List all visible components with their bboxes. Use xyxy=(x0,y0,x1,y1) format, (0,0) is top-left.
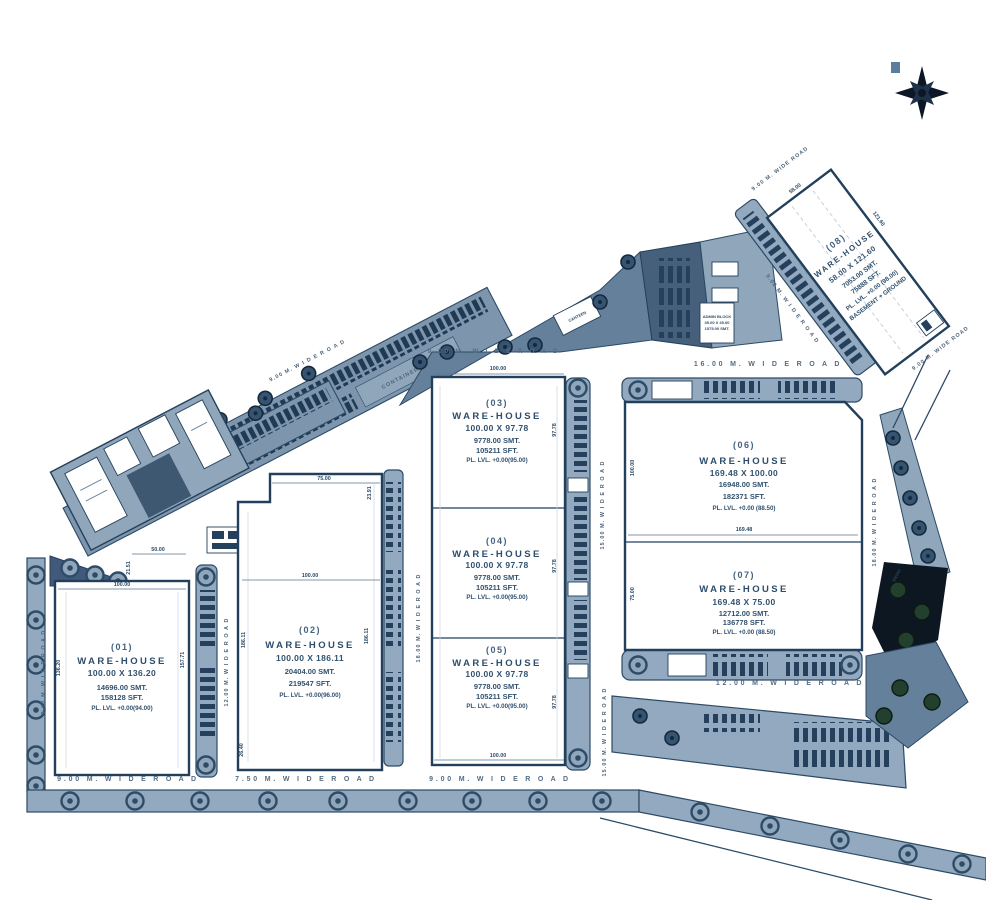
wh02-dim-left: 186.11 xyxy=(241,632,247,648)
wh05-sft: 105211 SFT. xyxy=(476,692,518,701)
corporate-block xyxy=(50,390,249,550)
wh06-dim-left: 100.00 xyxy=(630,460,636,477)
wh07-num: (07) xyxy=(733,570,755,580)
road-label-9m-left: 9.00 M. W I D E R O A D xyxy=(41,630,47,715)
wh06-smt: 16948.00 SMT. xyxy=(719,480,769,489)
warehouse-03-05-block: 100.00 100.00 (03) WARE-HOUSE 100.00 X 9… xyxy=(432,366,565,765)
road-label-18m-mid: 18.00 M. W I D E R O A D xyxy=(416,574,422,663)
wh07-level: PL. LVL. +0.00 (88.50) xyxy=(713,629,776,636)
road-label-12m-bottom: 12.00 M. W I D E R O A D xyxy=(716,680,864,687)
wh05-dim-bottom: 100.00 xyxy=(490,753,507,759)
wh07-dim-left: 75.00 xyxy=(630,587,636,601)
wh04-sft: 105211 SFT. xyxy=(476,583,518,592)
wh06-num: (06) xyxy=(733,440,755,450)
strip-right-of-02 xyxy=(384,470,403,766)
wh02-dim-right-top: 23.91 xyxy=(367,486,373,500)
wh01-dim-right: 157.71 xyxy=(180,652,186,669)
wh02-size: 100.00 X 186.11 xyxy=(276,653,344,663)
wh01-dim-top: 100.00 xyxy=(114,582,131,588)
wh03-sft: 105211 SFT. xyxy=(476,446,518,455)
wh06-level: PL. LVL. +0.00 (88.50) xyxy=(713,505,776,512)
bottom-right-boundary-strip xyxy=(639,790,986,880)
road-label-16m-top: 16.00 M. W I D E R O A D xyxy=(694,361,842,368)
wh02-num: (02) xyxy=(299,625,321,635)
wh02-title: WARE-HOUSE xyxy=(265,640,354,651)
wh01-smt: 14696.00 SMT. xyxy=(97,683,147,692)
wh05-title: WARE-HOUSE xyxy=(452,658,541,669)
wh05-dim-right: 97.78 xyxy=(552,695,558,709)
wh07-sft: 136778 SFT. xyxy=(723,618,766,627)
admin-block: ADMIN BLOCK 35.00 X 45.00 1575.00 SMT. xyxy=(700,303,734,343)
wh01-dim-notch-w: 50.00 xyxy=(151,547,165,553)
wh05-num: (05) xyxy=(486,645,508,655)
warehouse-06-07-block: (06) WARE-HOUSE 169.48 X 100.00 16948.00… xyxy=(625,402,862,650)
wh02-dim-right: 186.11 xyxy=(364,628,370,644)
compass-icon xyxy=(895,66,949,120)
wh02-level: PL. LVL. +0.00(96.00) xyxy=(279,692,340,699)
wh03-size: 100.00 X 97.78 xyxy=(465,423,528,433)
site-plan-drawing: CONTAINER YARD 9.00 M. W I D E R O A D xyxy=(0,0,986,900)
strip-right-of-03-05 xyxy=(566,378,590,770)
wh03-dim-top: 100.00 xyxy=(490,366,507,372)
wh07-smt: 12712.00 SMT. xyxy=(719,609,769,618)
wh04-level: PL. LVL. +0.00(95.00) xyxy=(466,594,527,601)
wh07-size: 169.48 X 75.00 xyxy=(712,597,775,607)
wh01-size: 100.00 X 136.20 xyxy=(88,668,156,678)
wh01-level: PL. LVL. +0.00(94.00) xyxy=(91,705,152,712)
wh01-title: WARE-HOUSE xyxy=(77,656,166,667)
parking-shed-1 xyxy=(712,262,738,276)
strip-below-07 xyxy=(622,650,862,680)
wh04-title: WARE-HOUSE xyxy=(452,549,541,560)
strip-above-06 xyxy=(622,378,862,402)
tree-icon xyxy=(62,560,79,577)
wh02-dim-bottom-left: 26.40 xyxy=(239,743,245,757)
wh05-level: PL. LVL. +0.00(95.00) xyxy=(466,703,527,710)
wh04-dim-right: 97.78 xyxy=(552,559,558,573)
truck-yard xyxy=(612,696,906,788)
road-label-18m-right: 18.00 M. W I D E R O A D xyxy=(872,478,878,567)
wh01-sft: 158128 SFT. xyxy=(101,693,144,702)
wh02-sft: 219547 SFT. xyxy=(289,679,332,688)
wh05-size: 100.00 X 97.78 xyxy=(465,669,528,679)
road-label-750m-bottom-wh02: 7.50 M. W I D E R O A D xyxy=(235,776,377,783)
wh03-level: PL. LVL. +0.00(95.00) xyxy=(466,457,527,464)
wh02-smt: 20404.00 SMT. xyxy=(285,667,335,676)
site-plan-canvas: CONTAINER YARD 9.00 M. W I D E R O A D xyxy=(0,0,986,900)
road-label-15m-upper: 15.00 M. W I D E R O A D xyxy=(600,461,606,550)
wh03-title: WARE-HOUSE xyxy=(452,411,541,422)
yard-dock-row xyxy=(656,258,690,338)
wh02-dim-mid: 100.00 xyxy=(302,573,319,579)
wh04-size: 100.00 X 97.78 xyxy=(465,560,528,570)
wh06-size: 169.48 X 100.00 xyxy=(710,468,778,478)
admin-label-2: 35.00 X 45.00 xyxy=(705,320,731,325)
wh02-dim-top: 75.00 xyxy=(317,476,331,482)
wh06-sft: 182371 SFT. xyxy=(723,492,766,501)
wh06-title: WARE-HOUSE xyxy=(699,456,788,467)
wh03-num: (03) xyxy=(486,398,508,408)
warehouse-02: (02) WARE-HOUSE 100.00 X 186.11 20404.00… xyxy=(238,474,382,770)
wh05-smt: 9778.00 SMT. xyxy=(474,682,520,691)
wh07-title: WARE-HOUSE xyxy=(699,584,788,595)
wh04-num: (04) xyxy=(486,536,508,546)
parking-shed-2 xyxy=(712,288,738,302)
wh01-dim-notch-h: 21.51 xyxy=(126,561,132,575)
road-label-9m-bottom-wh05: 9.00 M. W I D E R O A D xyxy=(429,776,571,783)
wh01-dim-left: 136.20 xyxy=(56,660,62,677)
compass-marker xyxy=(891,62,900,73)
wh01-num: (01) xyxy=(111,642,133,652)
wh03-dim-right: 97.78 xyxy=(552,423,558,437)
admin-label-1: ADMIN BLOCK xyxy=(703,314,732,319)
admin-label-3: 1575.00 SMT. xyxy=(705,326,730,331)
wh04-smt: 9778.00 SMT. xyxy=(474,573,520,582)
road-label-9m-bottom-wh01: 9.00 M. W I D E R O A D xyxy=(57,776,199,783)
strip-between-01-02 xyxy=(196,565,217,777)
wh03-smt: 9778.00 SMT. xyxy=(474,436,520,445)
warehouse-01: (01) WARE-HOUSE 100.00 X 136.20 14696.00… xyxy=(55,547,189,775)
road-label-12m: 12.00 M. W I D E R O A D xyxy=(224,618,230,707)
road-label-15m-lower: 15.00 M. W I D E R O A D xyxy=(602,688,608,777)
road-label-9m-top-wh03: 9.00 M. W I D E R O A D xyxy=(428,348,561,355)
wh06-dim-mid: 169.48 xyxy=(736,527,753,533)
